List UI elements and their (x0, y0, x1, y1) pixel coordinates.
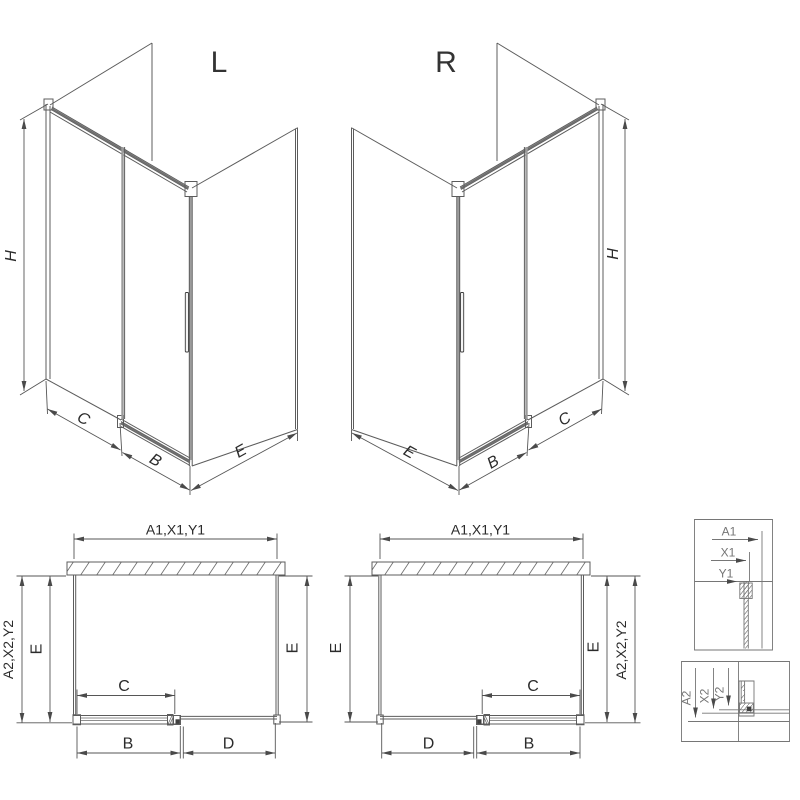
shower-enclosure-diagram: A1 X1 Y1 A2 X2 Y2 L H C B E R H E B (0, 0, 800, 800)
wall-hatch-left-plan (67, 562, 285, 575)
glass-cross-section (740, 582, 762, 649)
dim-label-c: C (74, 409, 93, 430)
dim-label-a1x1y1: A1,X1,Y1 (451, 522, 510, 538)
dim-label-c: C (556, 409, 575, 430)
bottom-rail-cross-section (739, 681, 754, 716)
variant-label-left: L (211, 46, 228, 79)
dim-label-e-right: E (586, 642, 603, 653)
detail-label-x2: X2 (698, 688, 712, 703)
detail-label-y1: Y1 (719, 567, 734, 581)
dim-label-b: B (123, 736, 134, 753)
detail-box-height: A2 X2 Y2 (680, 662, 790, 742)
dim-label-h: H (605, 248, 622, 260)
iso-view-left-labels: L H C B E (3, 46, 250, 471)
dim-label-b: B (484, 452, 502, 472)
dim-label-h: H (3, 250, 20, 262)
dim-label-c: C (118, 678, 130, 695)
dim-label-e-left: E (328, 643, 345, 654)
dim-label-e-left: E (29, 644, 46, 655)
dim-label-a2x2y2: A2,X2,Y2 (0, 620, 16, 679)
dim-label-c: C (527, 678, 539, 695)
detail-box-width: A1 X1 Y1 (695, 520, 773, 651)
dim-label-b: B (524, 736, 535, 753)
dim-label-e-right: E (285, 643, 302, 654)
detail-label-y2: Y2 (713, 686, 727, 701)
iso-view-left-lineart (20, 43, 298, 495)
iso-view-right-labels: R H E B C (400, 46, 622, 473)
detail-label-x1: X1 (721, 546, 736, 560)
dim-label-a1x1y1: A1,X1,Y1 (146, 522, 205, 538)
variant-label-right: R (435, 46, 457, 79)
detail-label-a1: A1 (722, 525, 737, 539)
dim-label-e: E (400, 443, 418, 463)
dim-label-d: D (223, 736, 235, 753)
wall-hatch-right-plan (372, 562, 590, 575)
dim-label-a2x2y2: A2,X2,Y2 (613, 620, 629, 679)
iso-view-right-lineart (352, 43, 630, 495)
detail-label-a2: A2 (680, 690, 694, 705)
technical-drawing-canvas: A1 X1 Y1 A2 X2 Y2 L H C B E R H E B (0, 0, 800, 800)
dim-label-e: E (232, 441, 250, 461)
dim-label-d: D (423, 736, 435, 753)
